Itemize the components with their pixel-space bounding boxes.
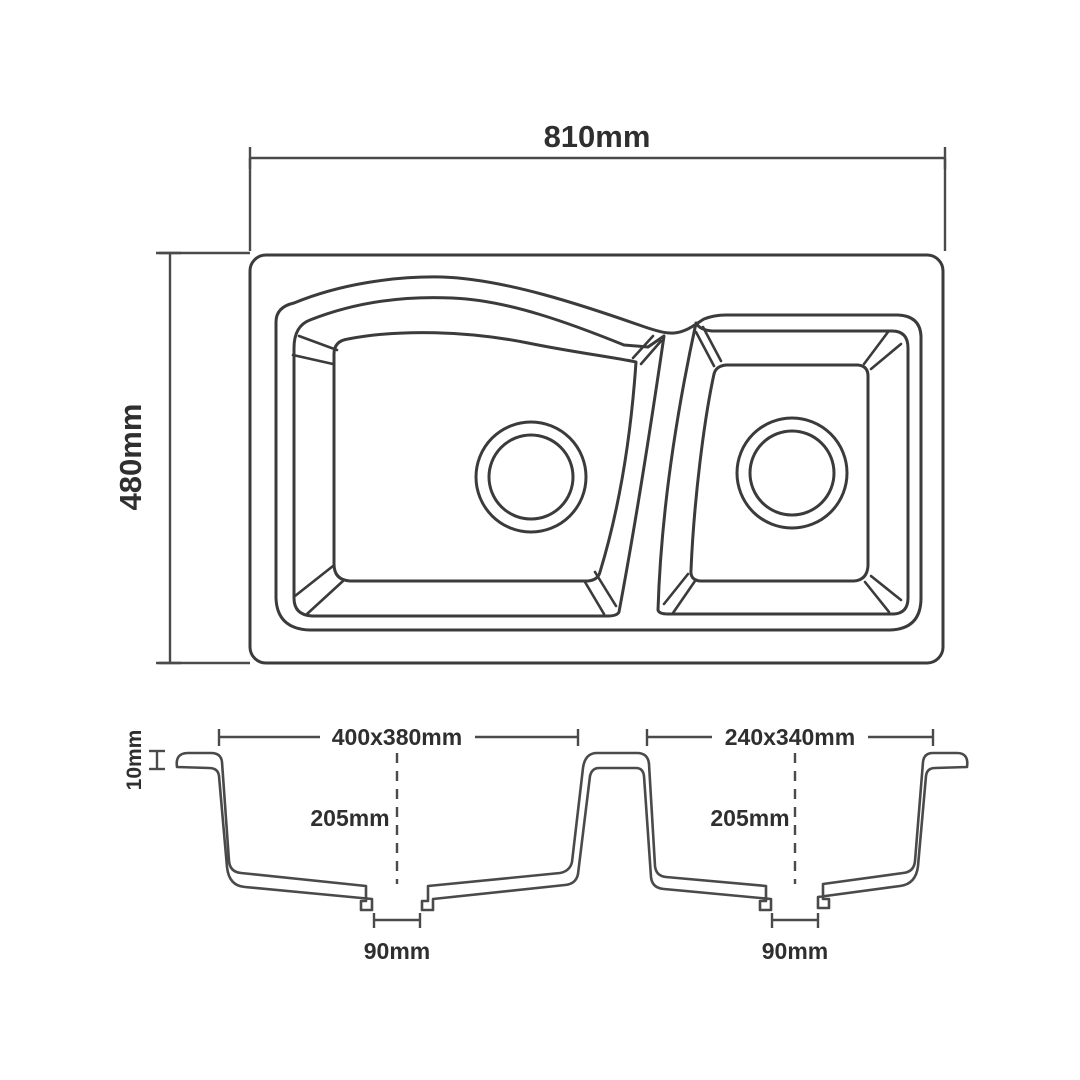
right-depth-label: 205mm — [710, 805, 789, 831]
right-bowl-drain — [737, 418, 847, 528]
sink-cross-section: 400x380mm 240x340mm 205mm 205mm 90mm 90m… — [123, 724, 967, 964]
right-bowl-floor-outline — [691, 365, 868, 581]
left-bowl-floor-outline — [334, 333, 636, 581]
dimension-right-opening: 240x340mm — [647, 724, 933, 750]
rim-height-label: 10mm — [123, 730, 146, 791]
section-right-bowl-profile — [818, 753, 967, 908]
right-opening-label: 240x340mm — [725, 724, 855, 750]
left-bowl-drain — [476, 422, 586, 532]
dimension-right-drain: 90mm — [762, 913, 828, 964]
left-opening-label: 400x380mm — [332, 724, 462, 750]
right-drain-label: 90mm — [762, 938, 828, 964]
drawing-canvas: 810mm 480mm 400x380mm — [0, 0, 1080, 1080]
dimension-width-810: 810mm — [250, 119, 945, 251]
left-drain-label: 90mm — [364, 938, 430, 964]
dimension-left-opening: 400x380mm — [219, 724, 578, 750]
section-divider-profile — [422, 753, 771, 910]
overall-width-label: 810mm — [544, 119, 651, 154]
technical-drawing: 810mm 480mm 400x380mm — [0, 0, 1080, 1080]
left-depth-label: 205mm — [310, 805, 389, 831]
overall-height-label: 480mm — [113, 404, 148, 511]
sink-top-view — [250, 255, 943, 663]
dimension-left-drain: 90mm — [364, 913, 430, 964]
dimension-height-480: 480mm — [113, 253, 250, 663]
dimension-rim-height: 10mm — [123, 730, 165, 791]
right-bowl-rim-outline — [658, 323, 908, 614]
section-left-bowl-profile — [177, 753, 372, 910]
